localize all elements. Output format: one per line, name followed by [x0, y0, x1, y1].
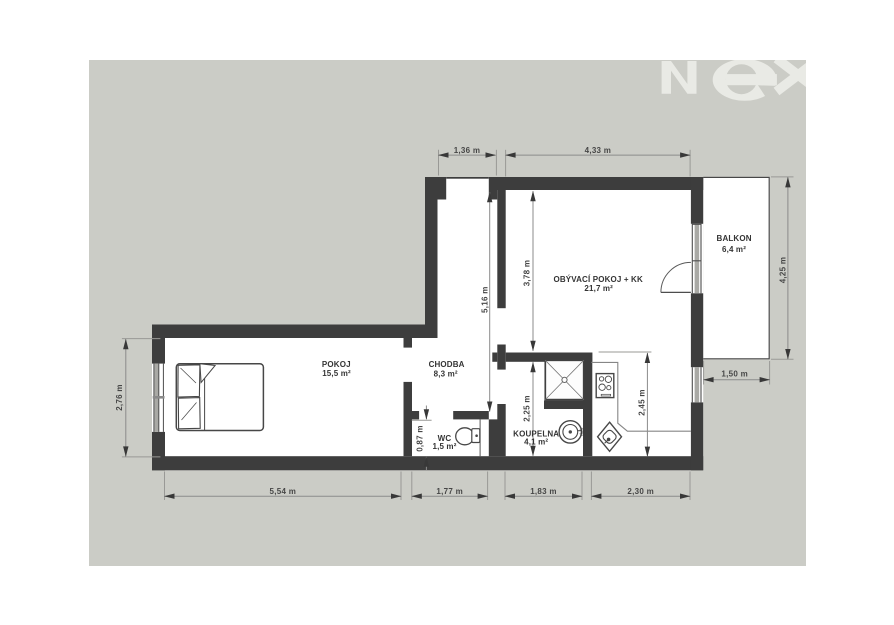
svg-text:5,54 m: 5,54 m: [270, 487, 297, 496]
svg-text:2,25 m: 2,25 m: [523, 395, 532, 422]
svg-text:6,4 m²: 6,4 m²: [722, 245, 746, 254]
svg-text:0,87 m: 0,87 m: [416, 425, 425, 452]
svg-text:4,25 m: 4,25 m: [779, 257, 788, 284]
svg-text:POKOJ: POKOJ: [322, 360, 351, 369]
svg-text:dub: dub: [580, 428, 586, 437]
svg-text:2,76 m: 2,76 m: [115, 384, 124, 411]
svg-text:CHODBA: CHODBA: [429, 360, 465, 369]
svg-text:4,1 m²: 4,1 m²: [524, 438, 548, 447]
svg-text:1,36 m: 1,36 m: [454, 146, 481, 155]
svg-text:2,30 m: 2,30 m: [627, 487, 654, 496]
svg-text:1,83 m: 1,83 m: [530, 487, 557, 496]
svg-text:OBÝVACÍ POKOJ + KK: OBÝVACÍ POKOJ + KK: [553, 275, 643, 284]
svg-text:15,5 m²: 15,5 m²: [322, 369, 351, 378]
svg-text:BALKON: BALKON: [717, 234, 752, 243]
svg-text:3,78 m: 3,78 m: [523, 260, 532, 287]
svg-text:1,5 m²: 1,5 m²: [432, 442, 456, 451]
svg-text:1,77 m: 1,77 m: [436, 487, 463, 496]
svg-text:8,3 m²: 8,3 m²: [434, 369, 458, 378]
svg-text:4,33 m: 4,33 m: [585, 146, 612, 155]
svg-text:1,50 m: 1,50 m: [721, 370, 748, 379]
svg-text:2,45 m: 2,45 m: [637, 389, 646, 416]
svg-text:21,7 m²: 21,7 m²: [584, 284, 613, 293]
svg-text:5,16 m: 5,16 m: [481, 286, 490, 313]
